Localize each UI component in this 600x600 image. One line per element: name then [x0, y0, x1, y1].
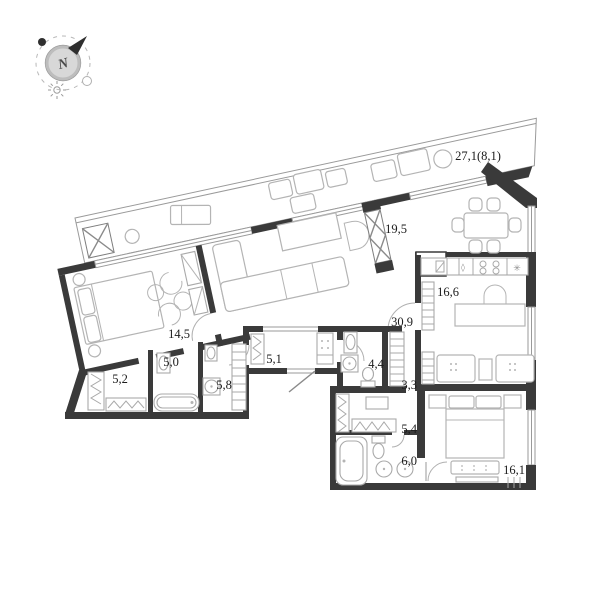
dining-table [464, 213, 508, 238]
dining-set [452, 198, 521, 253]
room-label-terrace: 27,1(8,1) [455, 149, 501, 163]
room-label-closet-1: 5,2 [112, 372, 128, 386]
kitchen-table [455, 304, 525, 326]
room-label-bath-4: 6,0 [401, 454, 417, 468]
compass-sun-icon [48, 81, 66, 99]
toilet-2-tank [372, 436, 385, 443]
room-label-wardrobe: 5,4 [401, 422, 417, 436]
bed-2 [446, 409, 504, 458]
radiator [456, 477, 498, 482]
room-label-bedroom-2: 16,1 [503, 463, 525, 477]
room-label-bath-3: 4,4 [368, 357, 384, 371]
bathroom-2-fixtures [203, 344, 246, 410]
nightstand-3 [429, 395, 446, 408]
braced-column [361, 199, 394, 273]
room-label-hallway: 5,1 [266, 352, 282, 366]
room-label-bath-1: 5,0 [163, 355, 179, 369]
vent-icon: ✳ [513, 264, 521, 274]
floor-plan-svg: N [0, 0, 600, 600]
kitchen-cabinets [422, 282, 434, 384]
room-label-bath-2: 5,8 [216, 378, 232, 392]
hall-fittings [251, 333, 333, 364]
room-label-kitchen: 16,6 [437, 285, 459, 299]
kitchen-armchair [484, 285, 506, 306]
wardrobe-room-fittings [336, 394, 396, 432]
room-label-bedroom-master: 14,5 [168, 327, 190, 341]
floor-plan-page: N [0, 0, 600, 600]
kitchen-counter: ◊ ✳ [421, 258, 528, 275]
master-bed [71, 258, 167, 358]
hall-cabinet [317, 333, 333, 364]
nightstand-1 [72, 272, 86, 286]
entrance-door-leaf [289, 371, 315, 392]
room-label-corridor-2: 3,3 [401, 378, 417, 392]
room-label-corridor-main: 30,9 [391, 315, 413, 329]
nightstand-2 [87, 344, 101, 358]
compass-icon: N [36, 36, 92, 99]
kitchen-sofas [437, 355, 534, 382]
toilet-2-bowl [373, 444, 384, 459]
room-label-living: 19,5 [385, 222, 407, 236]
compass-dot-icon [38, 38, 46, 46]
toilet-1-tank [361, 381, 375, 387]
nightstand-4 [504, 395, 521, 408]
drop-icon: ◊ [461, 263, 465, 272]
compass-small-circle [83, 77, 92, 86]
bed-bench [451, 461, 499, 474]
